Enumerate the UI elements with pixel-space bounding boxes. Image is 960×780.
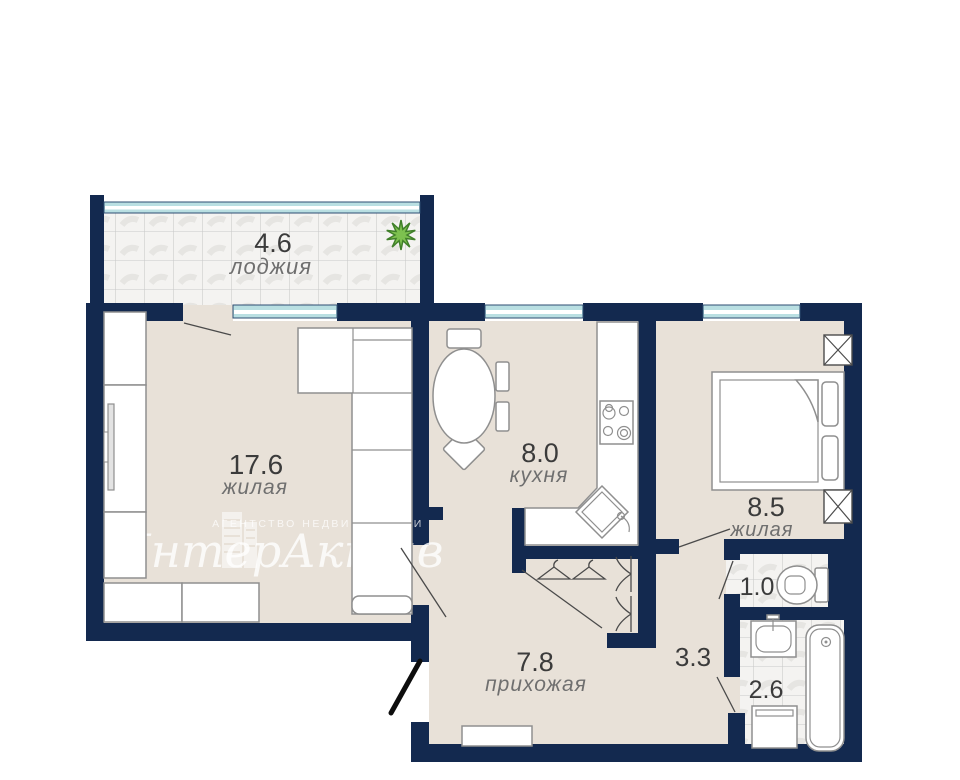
hall-left-wall-upper [411, 605, 429, 662]
loggia-name-label: лоджия [228, 254, 312, 279]
top-wall-seg2 [337, 303, 485, 321]
kitchen-bedroom-wall [638, 321, 656, 648]
floor-plan-svg: агентство недвижимости ИнтерАктив [0, 0, 960, 780]
right-outer-wall [844, 303, 862, 762]
loggia-glazing [104, 202, 420, 213]
bathtub-icon [806, 625, 844, 751]
wc-area-label: 1.0 [740, 573, 775, 601]
toilet-icon [777, 566, 828, 604]
wardrobe-top-wall [512, 546, 638, 559]
balcony-door-gap [183, 303, 233, 321]
bed-icon [712, 372, 844, 490]
loggia-left-wall [90, 195, 104, 321]
living-window [233, 305, 337, 318]
basin-icon [751, 615, 796, 657]
living-name-label: жилая [221, 476, 288, 499]
bath-left-wall-lower [728, 713, 745, 762]
entrance-door [391, 661, 420, 713]
wc-fixtures [777, 566, 828, 604]
wc-left-wall-upper [724, 539, 740, 560]
bedroom-window [703, 305, 800, 318]
doormat [462, 726, 532, 746]
wc-bath-divider-wall [724, 607, 844, 620]
loggia-right-wall [420, 195, 434, 321]
stove-icon [600, 401, 633, 444]
washing-machine-icon [752, 706, 797, 748]
living-kitchen-wall [411, 321, 429, 545]
left-outer-wall [86, 303, 104, 641]
living-bottom-wall [86, 623, 411, 641]
kitchen-name-label: кухня [510, 464, 569, 487]
kitchen-window [485, 305, 583, 318]
corridor-area-label: 3.3 [675, 642, 711, 672]
kitchen-door-jamb [429, 507, 443, 520]
hall-left-wall-lower [411, 722, 429, 762]
bedroom-bottom-wall-left [648, 539, 679, 554]
wardrobe-left-wall [512, 508, 526, 573]
floor-plan: агентство недвижимости ИнтерАктив [0, 0, 960, 780]
wc-shaft-wall [828, 553, 844, 607]
bathroom-area-label: 2.6 [749, 676, 784, 704]
hallway-name-label: прихожая [485, 673, 587, 696]
bedroom-name-label: жилая [730, 519, 794, 541]
cabinet-icon [104, 583, 259, 622]
wardrobe-bottom-wall [607, 633, 638, 648]
bath-left-wall-upper [724, 620, 740, 677]
top-wall-seg3 [583, 303, 703, 321]
bedroom-bottom-wall-right [724, 539, 844, 554]
bedroom-area-label: 8.5 [747, 492, 785, 522]
